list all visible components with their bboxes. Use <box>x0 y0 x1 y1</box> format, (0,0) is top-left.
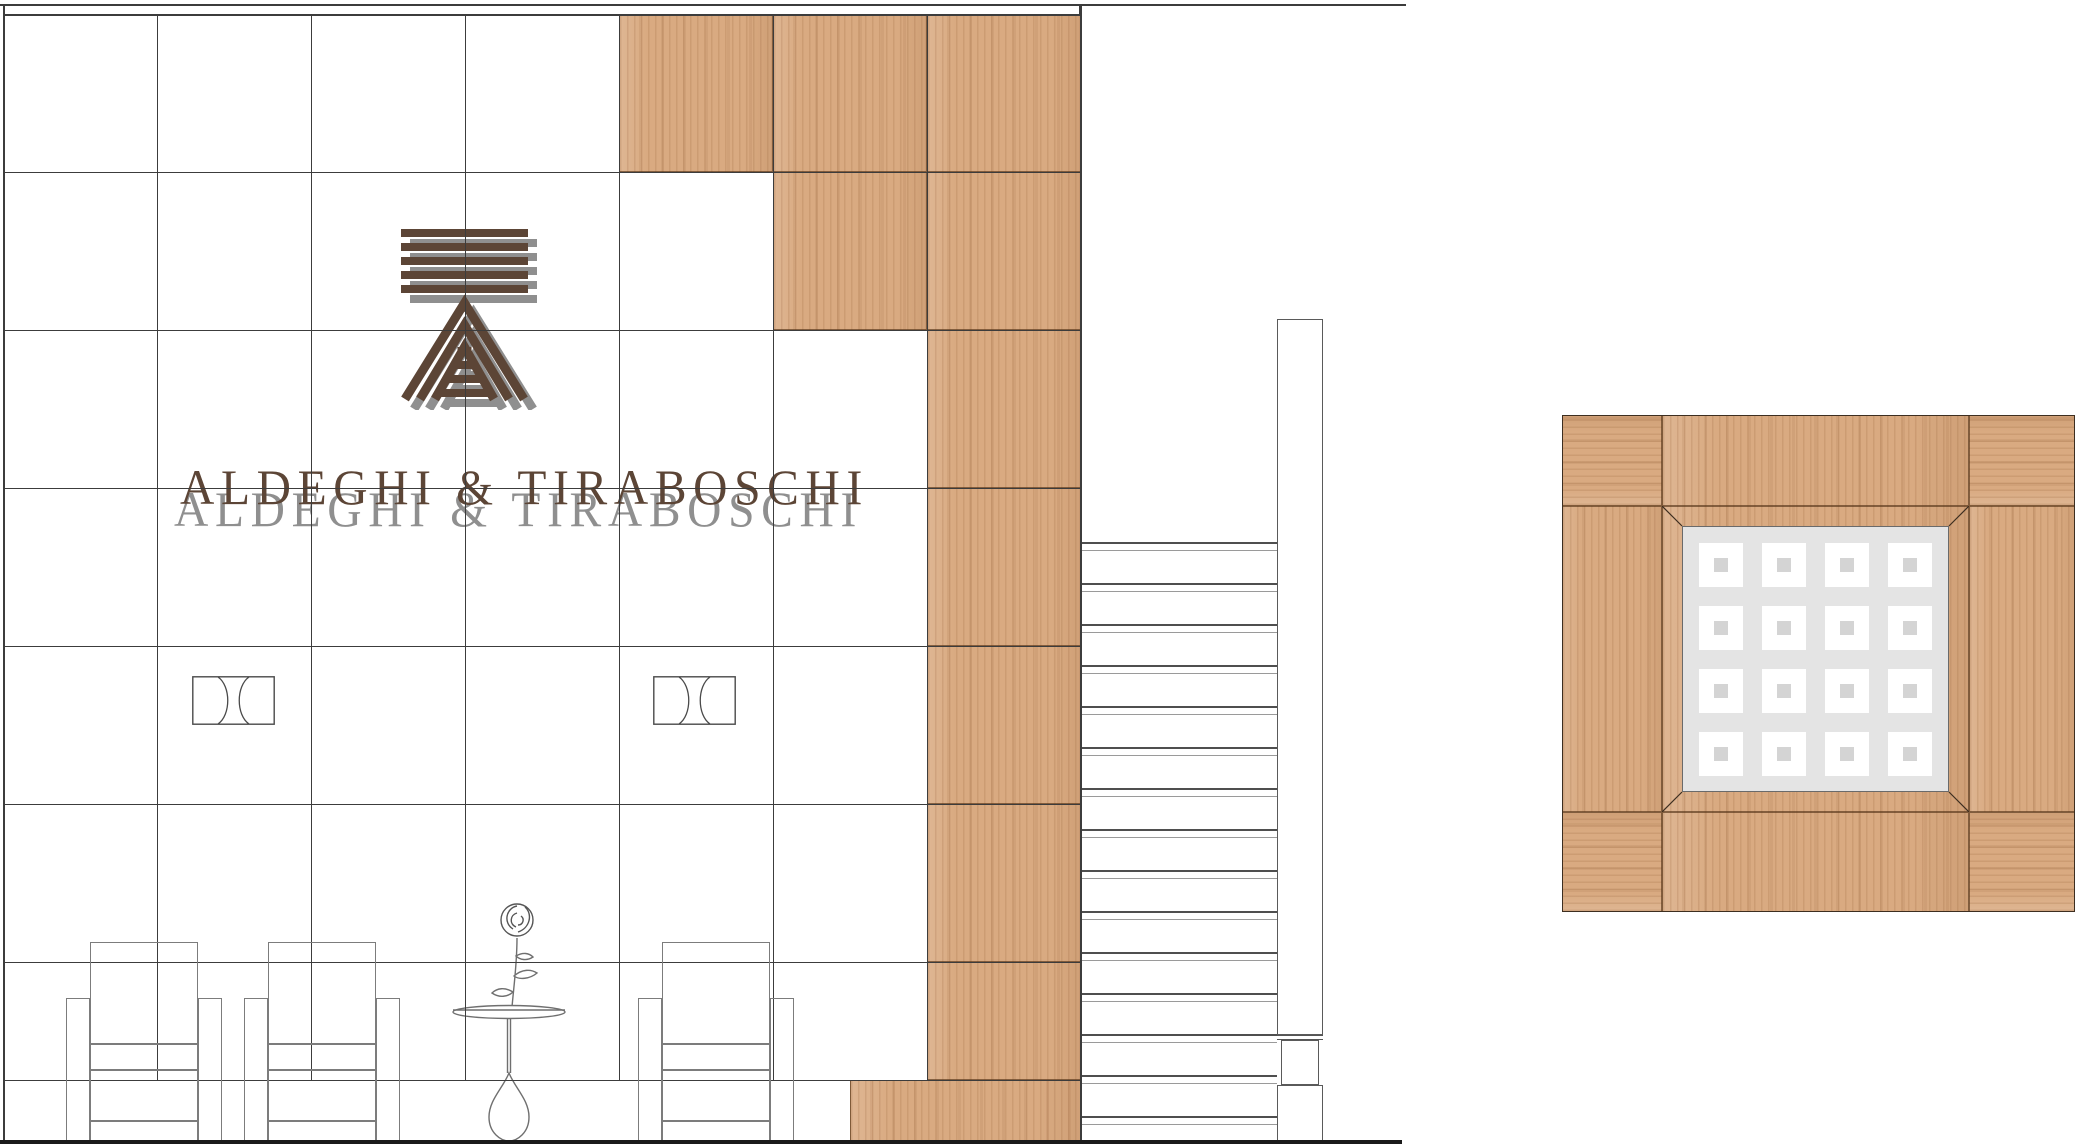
table-with-rose <box>430 880 600 1146</box>
ladder-rung <box>1082 542 1277 544</box>
ladder-rung-line <box>1082 960 1277 961</box>
ladder-rung <box>1082 788 1277 790</box>
ladder-rung <box>1082 1034 1277 1036</box>
grid-column-line <box>619 14 620 1080</box>
floor-line <box>0 1140 1402 1144</box>
grid-row-line <box>3 14 1081 16</box>
wood-panel <box>927 962 1081 1080</box>
ladder-rung <box>1082 993 1277 995</box>
grid-row-line <box>3 172 1081 173</box>
chair-seat-line <box>90 1043 198 1045</box>
ladder-rung-line <box>1082 755 1277 756</box>
chair-arm-left <box>638 998 662 1141</box>
ladder-rung <box>1082 1116 1277 1118</box>
grid-row-line <box>3 646 1081 647</box>
chair-seat-line <box>268 1069 376 1071</box>
ladder-rung-line <box>1082 632 1277 633</box>
drawing-canvas: ALDEGHI & TIRABOSCHI ALDEGHI & TIRABOSCH… <box>0 0 2083 1146</box>
ladder-rung <box>1082 1075 1277 1077</box>
wood-panel <box>619 14 773 172</box>
wood-panel <box>927 488 1081 646</box>
ladder-rung-line <box>1082 919 1277 920</box>
chair-back <box>90 942 198 1141</box>
ladder-post <box>1277 319 1323 1035</box>
ladder-rung-line <box>1082 837 1277 838</box>
chair-arm-right <box>770 998 794 1141</box>
ladder-rung <box>1082 870 1277 872</box>
ladder-post-narrow <box>1281 1040 1319 1085</box>
brand-wordmark: ALDEGHI & TIRABOSCHI <box>180 462 869 512</box>
plan-detail-miter-lines <box>1662 506 1969 812</box>
chair-arm-left <box>66 998 90 1141</box>
chair-seat-line <box>662 1120 770 1122</box>
chair-seat-line <box>268 1120 376 1122</box>
ceiling-tick <box>1079 4 1081 14</box>
wood-panel <box>927 14 1081 172</box>
ladder-rung-line <box>1082 714 1277 715</box>
chair-back <box>662 942 770 1141</box>
ladder-post-base <box>1277 1085 1323 1141</box>
ladder-rung <box>1082 583 1277 585</box>
grid-column-line <box>465 14 466 1080</box>
chair-seat-line <box>662 1069 770 1071</box>
chair-seat-line <box>90 1069 198 1071</box>
ladder-rung-line <box>1082 1042 1277 1043</box>
ladder-rung-line <box>1082 1083 1277 1084</box>
chair-back <box>268 942 376 1141</box>
chair-arm-left <box>244 998 268 1141</box>
ladder-rung <box>1082 952 1277 954</box>
grid-column-line <box>157 14 158 1080</box>
ladder-rung-line <box>1082 673 1277 674</box>
wood-panel <box>773 14 927 172</box>
ladder-rung-line <box>1082 1124 1277 1125</box>
sconce-symbol-icon <box>192 676 275 725</box>
wood-panel <box>850 1080 1081 1141</box>
brand-logo-icon <box>401 229 538 410</box>
chair-seat-line <box>90 1120 198 1122</box>
ladder-rung <box>1082 706 1277 708</box>
ladder-rung <box>1082 665 1277 667</box>
ladder-rung-line <box>1082 1001 1277 1002</box>
sconce-symbol-icon <box>653 676 736 725</box>
ladder-rung <box>1082 911 1277 913</box>
wood-panel <box>927 330 1081 488</box>
ladder-rung-line <box>1082 591 1277 592</box>
grid-row-line <box>3 488 1081 489</box>
chair-seat-line <box>268 1043 376 1045</box>
wood-panel <box>773 172 927 330</box>
wood-panel <box>927 804 1081 962</box>
ladder-rung-line <box>1082 796 1277 797</box>
wood-panel <box>927 172 1081 330</box>
chair-arm-right <box>376 998 400 1141</box>
chair-seat-line <box>662 1043 770 1045</box>
grid-row-line <box>3 804 1081 805</box>
ladder-rung <box>1082 747 1277 749</box>
ladder-rung-line <box>1082 878 1277 879</box>
grid-column-line <box>311 14 312 1080</box>
grid-column-line <box>927 14 928 1080</box>
wall-right-edge <box>1080 4 1082 1141</box>
chair-arm-right <box>198 998 222 1141</box>
grid-column-line <box>773 14 774 1080</box>
ceiling-line <box>0 4 1406 6</box>
ladder-rung <box>1082 829 1277 831</box>
wood-panel <box>927 646 1081 804</box>
grid-row-line <box>3 330 1081 331</box>
ladder-rung-line <box>1082 550 1277 551</box>
ladder-rung <box>1082 624 1277 626</box>
wall-left-edge <box>3 4 5 1141</box>
